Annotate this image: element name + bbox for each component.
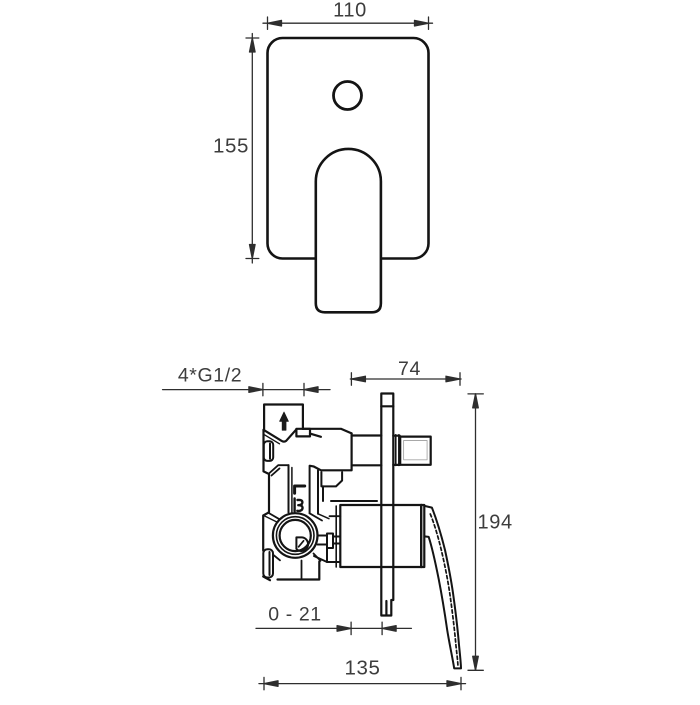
svg-text:194: 194 [478,512,513,534]
svg-text:74: 74 [398,358,421,380]
svg-text:110: 110 [333,0,367,22]
svg-text:4*G1/2: 4*G1/2 [178,365,242,387]
svg-text:135: 135 [344,657,380,680]
svg-text:155: 155 [213,135,249,158]
svg-text:0 - 21: 0 - 21 [268,604,321,626]
